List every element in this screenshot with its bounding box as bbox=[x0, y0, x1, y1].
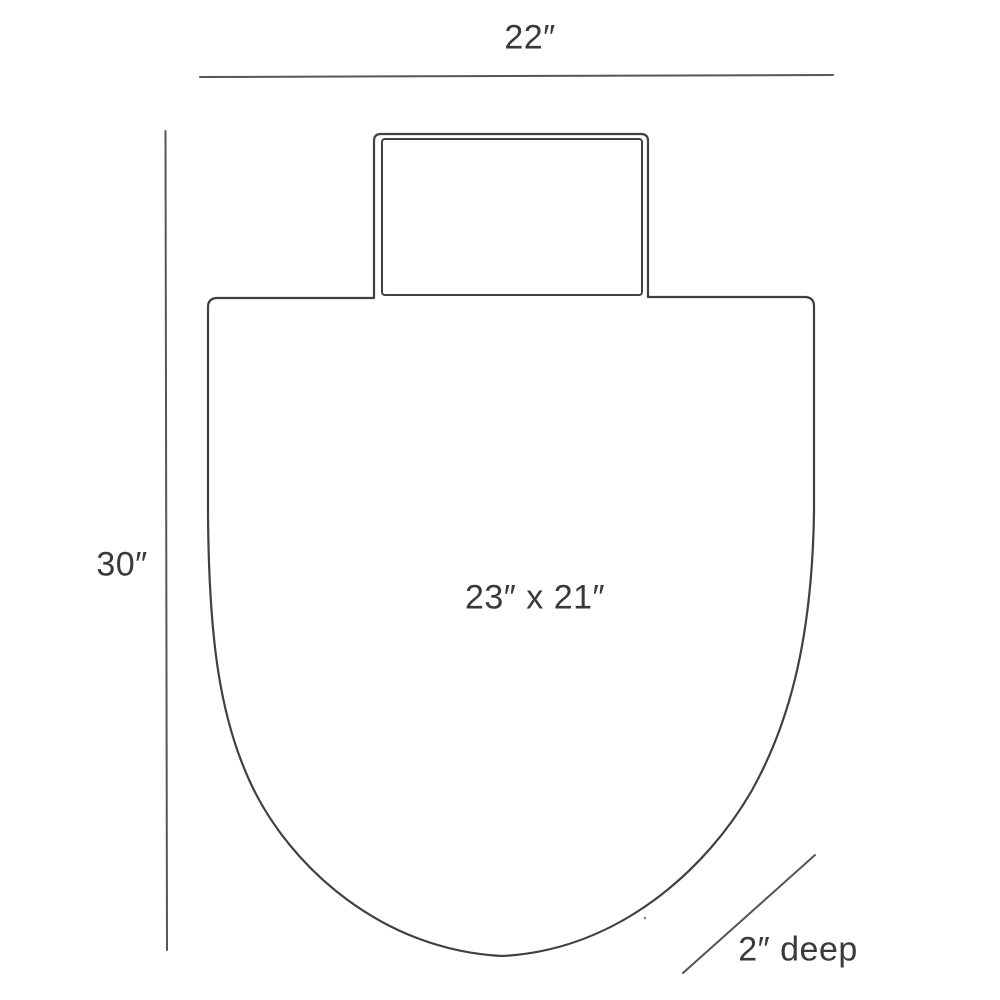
depth-dimension-label: 2″ deep bbox=[738, 931, 858, 970]
height-dimension-label: 30″ bbox=[96, 546, 147, 585]
dimension-diagram: 22″ 30″ 23″ x 21″ 2″ deep bbox=[0, 0, 1000, 1000]
center-size-label: 23″ x 21″ bbox=[465, 579, 605, 618]
width-dimension-label: 22″ bbox=[504, 19, 555, 58]
speck-dot bbox=[644, 917, 647, 920]
panel-outline bbox=[208, 134, 814, 956]
height-dimension-line bbox=[166, 131, 168, 950]
width-dimension-line bbox=[200, 75, 833, 77]
diagram-canvas bbox=[0, 0, 1000, 1000]
tab-inner-rectangle bbox=[382, 139, 642, 295]
